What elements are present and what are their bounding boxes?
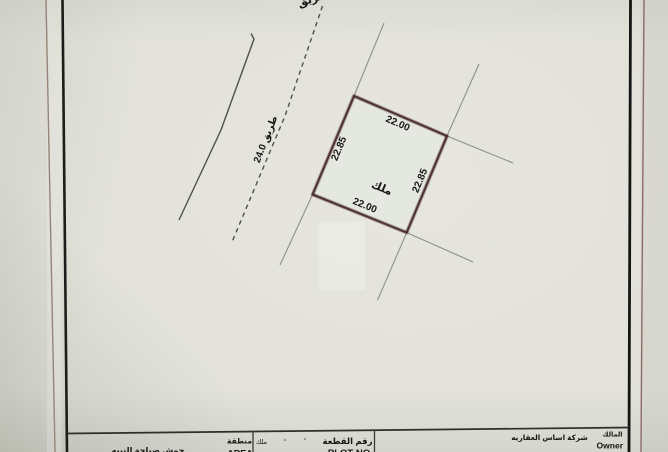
svg-text:AREA: AREA — [227, 449, 253, 452]
svg-text:رقم القطعة: رقم القطعة — [323, 436, 373, 447]
svg-text:PLOT NO: PLOT NO — [328, 448, 370, 452]
svg-text:حوش صباحة النبيه: حوش صباحة النبيه — [112, 446, 185, 452]
svg-text:شركة اساس العقاريه: شركة اساس العقاريه — [511, 433, 588, 442]
svg-text:طريق: طريق — [296, 0, 329, 10]
svg-text:ملك: ملك — [256, 439, 267, 446]
svg-text:طريق 24.0: طريق 24.0 — [252, 114, 280, 164]
svg-text:المالك: المالك — [603, 432, 623, 439]
svg-text:Owner: Owner — [597, 441, 624, 451]
svg-text:منطقة: منطقة — [227, 437, 252, 446]
